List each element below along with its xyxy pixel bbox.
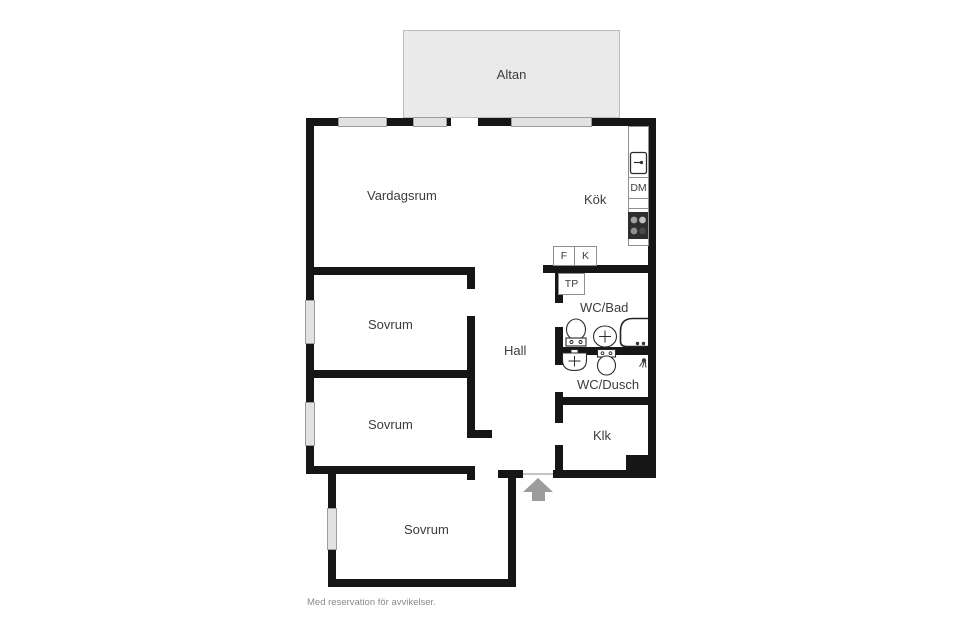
washbasin-icon [563,350,587,371]
toilet-icon [598,350,616,376]
dishwasher-label: DM [628,178,649,198]
bathtub-icon [621,319,649,347]
shower-icon [640,358,647,367]
room-label-wc-bad: WC/Bad [580,300,628,315]
room-label-sovrum-3: Sovrum [404,522,449,537]
room-label-vardagsrum: Vardagsrum [367,188,437,203]
floor-plan: Altan DM [0,0,960,640]
room-label-kok: Kök [584,192,606,207]
kitchen-sink-icon [631,153,647,174]
washbasin-icon [594,326,617,347]
room-label-sovrum-2: Sovrum [368,417,413,432]
room-label-sovrum-1: Sovrum [368,317,413,332]
fixtures-layer [0,0,960,640]
room-label-altan: Altan [497,67,527,82]
room-label-wc-dusch: WC/Dusch [577,377,639,392]
room-label-hall: Hall [504,343,526,358]
entrance-arrow-icon [523,478,553,501]
toilet-icon [566,319,586,346]
room-label-klk: Klk [593,428,611,443]
